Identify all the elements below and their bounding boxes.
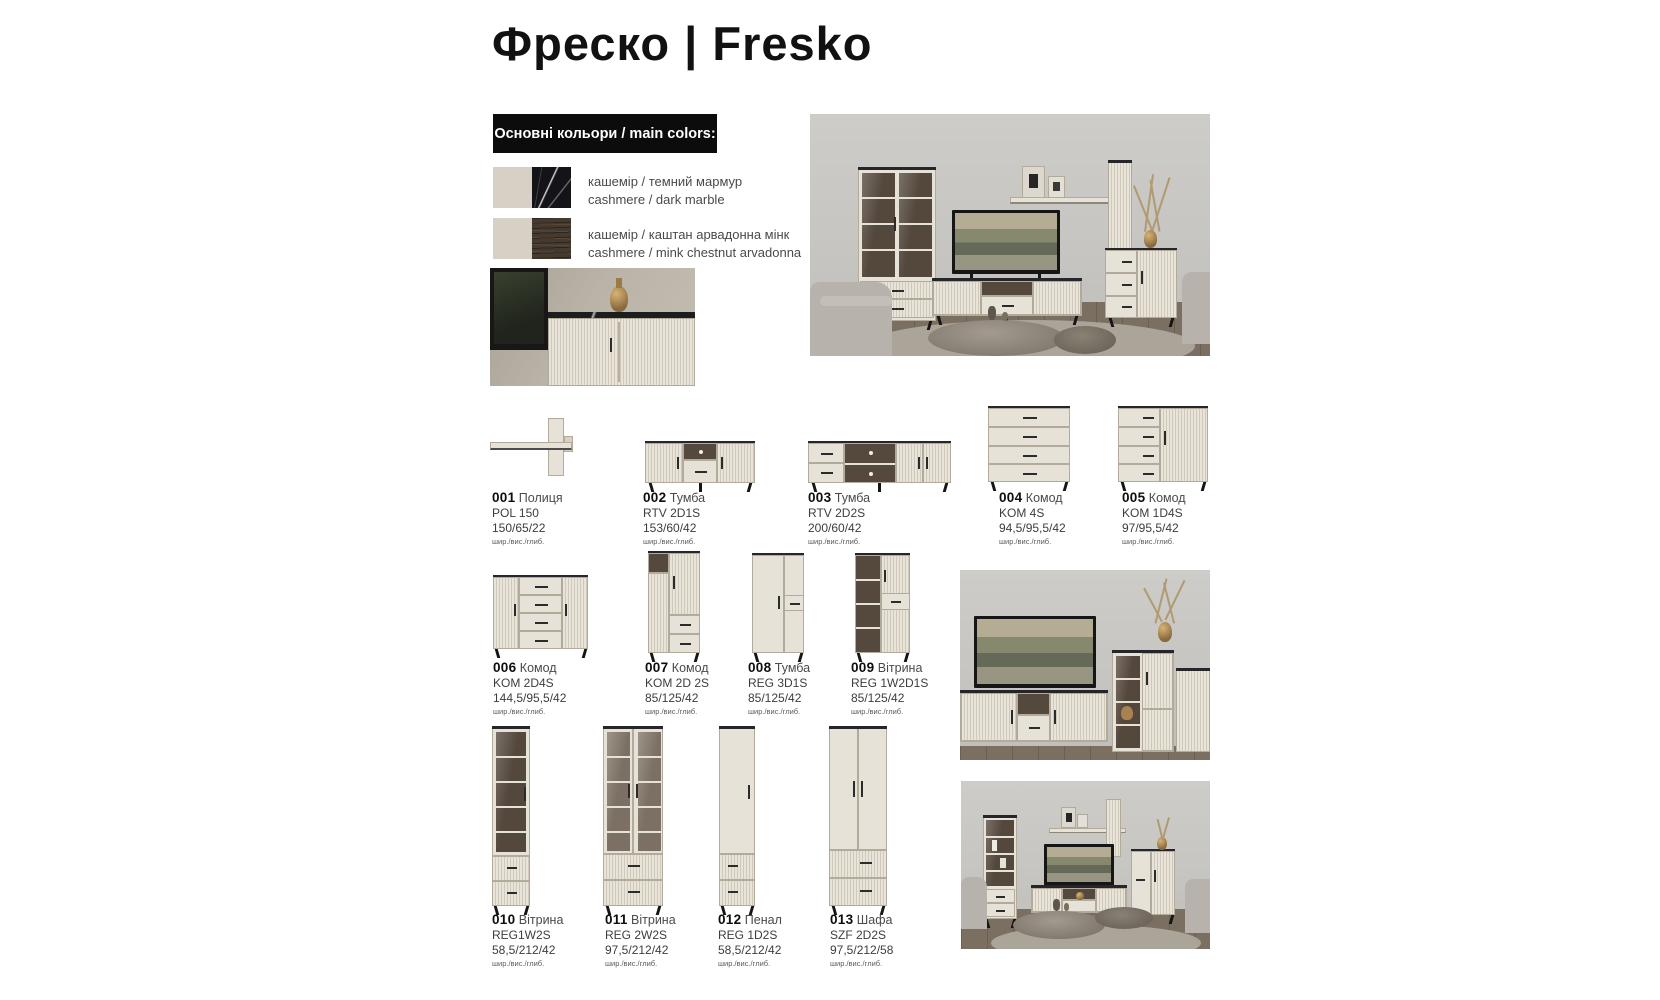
swatch-label-dark-marble: кашемір / темний мармур cashmere / dark … (588, 173, 742, 210)
sofa-right (1182, 272, 1210, 344)
product-illustration-012 (719, 728, 755, 906)
product-name: Тумба (775, 661, 810, 675)
product-number: 013 (830, 912, 853, 927)
product-name: Вітрина (519, 913, 564, 927)
product-label-009: 009 Вітрина REG 1W2D1S 85/125/42 шир./ви… (851, 660, 928, 716)
side-table (1054, 326, 1116, 354)
color-swatch-mink-chestnut (493, 218, 571, 259)
product-code: KOM 1D4S (1122, 506, 1186, 521)
product-name: Комод (520, 661, 557, 675)
swatch-label-en: cashmere / dark marble (588, 191, 742, 209)
dimension-note: шир./вис./глиб. (492, 537, 563, 546)
chest-of-drawers (1105, 250, 1177, 318)
product-dimensions: 150/65/22 (492, 521, 563, 536)
product-code: RTV 2D2S (808, 506, 870, 521)
product-label-001: 001 Полиця POL 150 150/65/22 шир./вис./г… (492, 490, 563, 546)
product-label-012: 012 Пенал REG 1D2S 58,5/212/42 шир./вис.… (718, 912, 782, 968)
product-label-013: 013 Шафа SZF 2D2S 97,5/212/58 шир./вис./… (830, 912, 893, 968)
dark-marble-color-chip (532, 167, 571, 208)
product-code: KOM 4S (999, 506, 1066, 521)
swatch-label-uk: кашемір / каштан арвадонна мінк (588, 226, 801, 244)
coffee-table (928, 320, 1064, 356)
product-label-005: 005 Комод KOM 1D4S 97/95,5/42 шир./вис./… (1122, 490, 1186, 546)
product-label-007: 007 Комод KOM 2D 2S 85/125/42 шир./вис./… (645, 660, 709, 716)
mink-chestnut-color-chip (532, 218, 571, 259)
product-number: 012 (718, 912, 741, 927)
table-vase (1002, 312, 1008, 321)
product-dimensions: 144,5/95,5/42 (493, 691, 566, 706)
product-illustration-004 (988, 408, 1070, 482)
product-name: Пенал (745, 913, 782, 927)
product-dimensions: 85/125/42 (645, 691, 709, 706)
product-name: Вітрина (878, 661, 923, 675)
product-name: Полиця (519, 491, 563, 505)
product-name: Шафа (857, 913, 893, 927)
product-illustration-005 (1118, 408, 1208, 482)
product-code: REG 3D1S (748, 676, 810, 691)
product-name: Вітрина (631, 913, 676, 927)
product-dimensions: 153/60/42 (643, 521, 705, 536)
product-name: Комод (672, 661, 709, 675)
dimension-note: шир./вис./глиб. (999, 537, 1066, 546)
display-cabinet (1112, 652, 1174, 752)
dimension-note: шир./вис./глиб. (493, 707, 566, 716)
product-dimensions: 97,5/212/42 (605, 943, 676, 958)
product-label-010: 010 Вітрина REG1W2S 58,5/212/42 шир./вис… (492, 912, 563, 968)
product-name: Комод (1149, 491, 1186, 505)
product-code: REG 2W2S (605, 928, 676, 943)
dimension-note: шир./вис./глиб. (718, 959, 782, 968)
product-illustration-007 (648, 553, 700, 653)
product-code: REG 1D2S (718, 928, 782, 943)
dimension-note: шир./вис./глиб. (1122, 537, 1186, 546)
room-photo-main (810, 114, 1210, 356)
product-code: KOM 2D4S (493, 676, 566, 691)
dimension-note: шир./вис./глиб. (851, 707, 928, 716)
product-illustration-008 (752, 555, 804, 653)
product-label-006: 006 Комод KOM 2D4S 144,5/95,5/42 шир./ви… (493, 660, 566, 716)
product-illustration-006 (493, 577, 588, 649)
coffee-table (1013, 911, 1105, 939)
product-number: 011 (605, 912, 628, 927)
dimension-note: шир./вис./глиб. (643, 537, 705, 546)
tv (952, 210, 1060, 274)
product-illustration-010 (492, 728, 530, 906)
product-code: REG 1W2D1S (851, 676, 928, 691)
dimension-note: шир./вис./глиб. (808, 537, 870, 546)
tv (974, 616, 1096, 688)
product-number: 008 (748, 660, 771, 675)
product-illustration-009 (855, 555, 910, 653)
swatch-label-mink-chestnut: кашемір / каштан арвадонна мінк cashmere… (588, 226, 801, 263)
product-illustration-002 (645, 443, 755, 483)
dimension-note: шир./вис./глиб. (645, 707, 709, 716)
product-illustration-001 (490, 418, 586, 478)
product-dimensions: 58,5/212/42 (718, 943, 782, 958)
sofa-right (1185, 879, 1210, 933)
tv-corner (490, 268, 548, 350)
product-code: RTV 2D1S (643, 506, 705, 521)
product-illustration-003 (808, 443, 951, 483)
product-label-002: 002 Тумба RTV 2D1S 153/60/42 шир./вис./г… (643, 490, 705, 546)
product-illustration-011 (603, 728, 663, 906)
sofa-left (961, 877, 987, 929)
product-number: 005 (1122, 490, 1145, 505)
product-dimensions: 58,5/212/42 (492, 943, 563, 958)
product-dimensions: 85/125/42 (851, 691, 928, 706)
product-number: 004 (999, 490, 1022, 505)
product-label-008: 008 Тумба REG 3D1S 85/125/42 шир./вис./г… (748, 660, 810, 716)
tv-stand (960, 692, 1108, 748)
sofa-left (810, 282, 892, 356)
product-illustration-013 (829, 728, 887, 906)
room-photo-bottom (961, 781, 1210, 949)
product-number: 006 (493, 660, 516, 675)
closeup-photo-sideboard (490, 268, 695, 386)
product-code: REG1W2S (492, 928, 563, 943)
dimension-note: шир./вис./глиб. (605, 959, 676, 968)
page-title: Фреско | Fresko (492, 16, 873, 71)
product-number: 003 (808, 490, 831, 505)
dimension-note: шир./вис./глиб. (748, 707, 810, 716)
product-dimensions: 97,5/212/58 (830, 943, 893, 958)
product-dimensions: 97/95,5/42 (1122, 521, 1186, 536)
chest-of-drawers (1131, 851, 1175, 915)
table-vase (1053, 899, 1060, 911)
tv (1044, 844, 1114, 886)
product-name: Тумба (835, 491, 870, 505)
product-number: 009 (851, 660, 874, 675)
product-code: KOM 2D 2S (645, 676, 709, 691)
product-dimensions: 200/60/42 (808, 521, 870, 536)
color-swatch-dark-marble (493, 167, 571, 208)
table-vase (988, 306, 996, 320)
cashmere-color-chip (493, 167, 532, 208)
product-number: 002 (643, 490, 666, 505)
tv-stand (932, 280, 1082, 316)
swatch-label-uk: кашемір / темний мармур (588, 173, 742, 191)
product-code: POL 150 (492, 506, 563, 521)
sideboard-closeup (548, 312, 695, 386)
dimension-note: шир./вис./глиб. (492, 959, 563, 968)
chest-edge (1176, 670, 1210, 754)
display-cabinet (983, 817, 1017, 919)
product-code: SZF 2D2S (830, 928, 893, 943)
product-name: Комод (1026, 491, 1063, 505)
product-dimensions: 94,5/95,5/42 (999, 521, 1066, 536)
main-colors-heading: Основні кольори / main colors: (493, 114, 717, 153)
dimension-note: шир./вис./глиб. (830, 959, 893, 968)
table-vase (1064, 903, 1069, 911)
room-photo-middle (960, 570, 1210, 760)
side-table (1095, 907, 1153, 929)
product-number: 010 (492, 912, 515, 927)
product-number: 007 (645, 660, 668, 675)
product-dimensions: 85/125/42 (748, 691, 810, 706)
product-label-011: 011 Вітрина REG 2W2S 97,5/212/42 шир./ви… (605, 912, 676, 968)
product-name: Тумба (670, 491, 705, 505)
gold-vase (610, 286, 628, 312)
product-number: 001 (492, 490, 515, 505)
product-label-004: 004 Комод KOM 4S 94,5/95,5/42 шир./вис./… (999, 490, 1066, 546)
catalog-page: Фреско | Fresko Основні кольори / main c… (0, 0, 1660, 1000)
cashmere-color-chip (493, 218, 532, 259)
swatch-label-en: cashmere / mink chestnut arvadonna (588, 244, 801, 262)
product-label-003: 003 Тумба RTV 2D2S 200/60/42 шир./вис./г… (808, 490, 870, 546)
